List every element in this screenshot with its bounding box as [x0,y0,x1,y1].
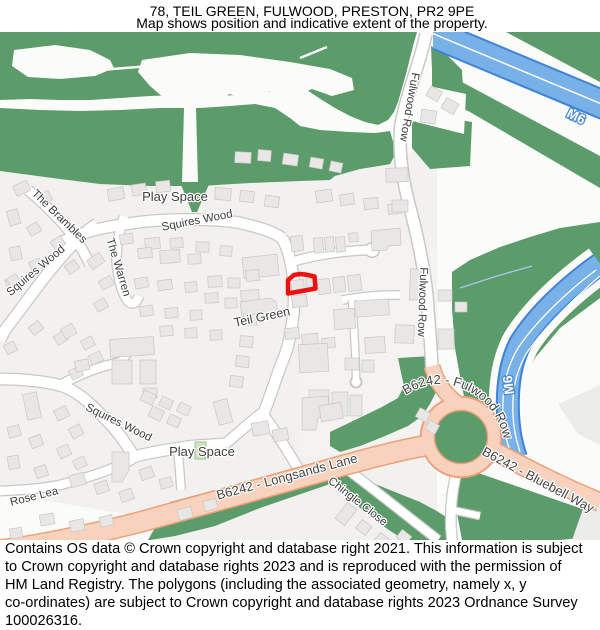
svg-text:M6: M6 [500,374,517,395]
svg-text:Fulwood Row: Fulwood Row [415,267,429,338]
svg-text:Play Space: Play Space [142,189,208,204]
svg-text:Play Space: Play Space [169,444,235,459]
